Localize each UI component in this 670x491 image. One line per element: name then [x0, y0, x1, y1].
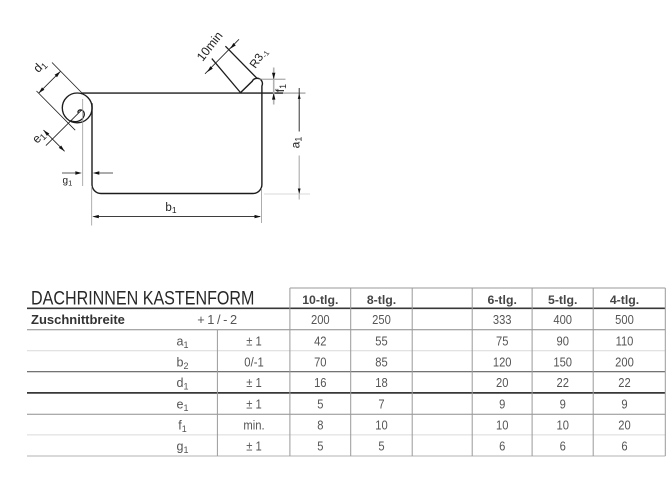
- svg-text:110: 110: [616, 334, 634, 349]
- svg-text:0/-1: 0/-1: [244, 355, 264, 370]
- svg-text:4-tlg.: 4-tlg.: [610, 293, 639, 307]
- svg-text:90: 90: [556, 334, 569, 349]
- svg-text:d1: d1: [177, 376, 189, 392]
- svg-text:± 1: ± 1: [246, 334, 262, 349]
- svg-text:22: 22: [556, 375, 569, 390]
- svg-text:6: 6: [560, 439, 566, 454]
- svg-text:f1: f1: [178, 418, 187, 434]
- svg-text:8: 8: [317, 418, 323, 433]
- svg-text:+1/-2: +1/-2: [197, 312, 240, 327]
- svg-text:5-tlg.: 5-tlg.: [548, 293, 577, 307]
- svg-text:6: 6: [621, 439, 627, 454]
- svg-text:g1: g1: [177, 440, 189, 456]
- svg-text:Zuschnittbreite: Zuschnittbreite: [31, 312, 125, 327]
- svg-text:333: 333: [493, 312, 512, 327]
- svg-text:200: 200: [615, 355, 634, 370]
- svg-text:200: 200: [311, 312, 330, 327]
- svg-text:5: 5: [317, 397, 323, 412]
- svg-text:10: 10: [556, 418, 569, 433]
- svg-text:5: 5: [317, 439, 323, 454]
- svg-text:20: 20: [496, 375, 509, 390]
- svg-text:f1: f1: [273, 84, 288, 92]
- svg-text:10min: 10min: [194, 29, 226, 64]
- svg-text:70: 70: [314, 355, 327, 370]
- svg-text:± 1: ± 1: [246, 397, 262, 412]
- svg-text:120: 120: [493, 355, 512, 370]
- svg-text:10-tlg.: 10-tlg.: [302, 293, 338, 307]
- svg-text:16: 16: [314, 375, 327, 390]
- svg-text:10: 10: [375, 418, 388, 433]
- svg-text:9: 9: [621, 397, 627, 412]
- svg-text:20: 20: [618, 418, 631, 433]
- svg-text:d1: d1: [31, 57, 50, 76]
- svg-text:55: 55: [375, 334, 388, 349]
- svg-text:5: 5: [378, 439, 384, 454]
- svg-text:150: 150: [553, 355, 572, 370]
- svg-text:g1: g1: [63, 176, 73, 188]
- svg-text:10: 10: [496, 418, 509, 433]
- svg-text:8-tlg.: 8-tlg.: [367, 293, 396, 307]
- svg-text:R3-1: R3-1: [248, 46, 271, 71]
- svg-text:42: 42: [314, 334, 327, 349]
- svg-text:75: 75: [496, 334, 509, 349]
- svg-text:9: 9: [560, 397, 566, 412]
- svg-text:22: 22: [618, 375, 631, 390]
- svg-text:DACHRINNEN KASTENFORM: DACHRINNEN KASTENFORM: [31, 287, 254, 309]
- svg-text:a1: a1: [177, 334, 189, 350]
- svg-text:500: 500: [615, 312, 634, 327]
- svg-text:9: 9: [499, 397, 505, 412]
- svg-text:± 1: ± 1: [246, 375, 262, 390]
- svg-text:a1: a1: [289, 137, 304, 149]
- svg-text:b1: b1: [165, 202, 176, 215]
- svg-text:min.: min.: [243, 418, 264, 433]
- svg-text:6: 6: [499, 439, 505, 454]
- svg-text:250: 250: [372, 312, 391, 327]
- svg-text:7: 7: [378, 397, 384, 412]
- svg-text:e1: e1: [177, 397, 189, 413]
- svg-text:400: 400: [553, 312, 572, 327]
- svg-text:85: 85: [375, 355, 388, 370]
- svg-text:± 1: ± 1: [246, 439, 262, 454]
- svg-text:18: 18: [375, 375, 388, 390]
- svg-text:6-tlg.: 6-tlg.: [488, 293, 517, 307]
- svg-text:e1: e1: [29, 128, 48, 147]
- svg-text:b2: b2: [177, 355, 189, 371]
